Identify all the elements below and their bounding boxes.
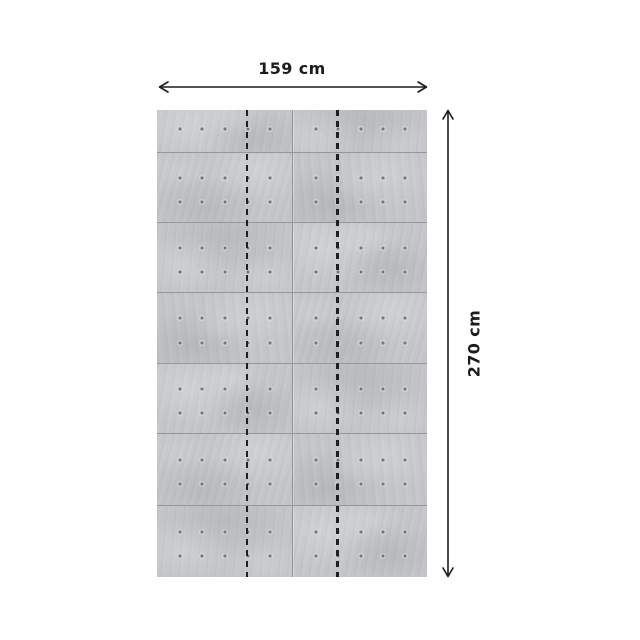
tie-hole-dot (382, 387, 385, 390)
height-dimension-label-wrap: 270 cm (456, 110, 492, 577)
tie-hole-dot (201, 555, 204, 558)
tie-hole-dot (179, 387, 182, 390)
height-dimension-label: 270 cm (465, 310, 484, 378)
tie-hole-dot (224, 246, 227, 249)
panel-row (157, 222, 427, 292)
concrete-block (292, 506, 427, 577)
tie-hole-dot (315, 176, 318, 179)
tie-hole-dot (359, 176, 362, 179)
concrete-block (292, 153, 427, 222)
tie-hole-dot (359, 387, 362, 390)
tie-hole-dot (359, 128, 362, 131)
strip-divider-line-2 (336, 110, 339, 577)
tie-hole-dot (179, 458, 182, 461)
tie-hole-dot (382, 200, 385, 203)
tie-hole-dot (179, 555, 182, 558)
tie-hole-dot (268, 483, 271, 486)
mural-panel (157, 110, 427, 577)
tie-hole-dot (268, 246, 271, 249)
tie-hole-dot (201, 530, 204, 533)
panel-row (157, 433, 427, 505)
tie-hole-dot (201, 246, 204, 249)
tie-hole-dot (201, 176, 204, 179)
tie-hole-dot (359, 200, 362, 203)
concrete-block (157, 153, 292, 222)
tie-hole-dot (224, 176, 227, 179)
tie-hole-dot (382, 317, 385, 320)
tie-hole-dot (268, 387, 271, 390)
width-dimension-label: 159 cm (157, 59, 427, 78)
tie-hole-dot (224, 341, 227, 344)
tie-hole-dot (224, 317, 227, 320)
tie-hole-dot (315, 128, 318, 131)
tie-hole-dot (404, 317, 407, 320)
panel-row (157, 505, 427, 577)
tie-hole-dot (224, 458, 227, 461)
tie-hole-dot (268, 458, 271, 461)
dimension-diagram: 159 cm 270 cm (0, 0, 640, 640)
concrete-block (292, 434, 427, 505)
tie-hole-dot (224, 483, 227, 486)
concrete-block (157, 110, 292, 152)
tie-hole-dot (179, 530, 182, 533)
panel-rows (157, 110, 427, 577)
panel-row (157, 292, 427, 363)
tie-hole-dot (224, 387, 227, 390)
tie-hole-dot (404, 270, 407, 273)
tie-hole-dot (201, 270, 204, 273)
tie-hole-dot (404, 555, 407, 558)
tie-hole-dot (359, 530, 362, 533)
tie-hole-dot (179, 411, 182, 414)
tie-hole-dot (359, 317, 362, 320)
tie-hole-dot (315, 270, 318, 273)
tie-hole-dot (359, 341, 362, 344)
tie-hole-dot (404, 176, 407, 179)
tie-hole-dot (315, 530, 318, 533)
tie-hole-dot (404, 483, 407, 486)
tie-hole-dot (359, 483, 362, 486)
concrete-block (157, 223, 292, 292)
concrete-block (157, 506, 292, 577)
tie-hole-dot (268, 317, 271, 320)
tie-hole-dot (315, 341, 318, 344)
tie-hole-dot (268, 411, 271, 414)
panel-row (157, 152, 427, 222)
tie-hole-dot (382, 246, 385, 249)
tie-hole-dot (404, 458, 407, 461)
concrete-block (292, 293, 427, 363)
tie-hole-dot (404, 341, 407, 344)
tie-hole-dot (201, 387, 204, 390)
tie-hole-dot (404, 128, 407, 131)
tie-hole-dot (382, 555, 385, 558)
tie-hole-dot (224, 200, 227, 203)
panel-row (157, 363, 427, 433)
tie-hole-dot (382, 128, 385, 131)
tie-hole-dot (382, 483, 385, 486)
tie-hole-dot (201, 483, 204, 486)
tie-hole-dot (179, 246, 182, 249)
height-arrow (443, 111, 453, 577)
tie-hole-dot (179, 270, 182, 273)
tie-hole-dot (315, 555, 318, 558)
tie-hole-dot (359, 458, 362, 461)
width-arrow (160, 82, 427, 92)
tie-hole-dot (224, 530, 227, 533)
tie-hole-dot (315, 411, 318, 414)
tie-hole-dot (179, 176, 182, 179)
tie-hole-dot (224, 555, 227, 558)
tie-hole-dot (201, 458, 204, 461)
tie-hole-dot (268, 128, 271, 131)
tie-hole-dot (315, 317, 318, 320)
tie-hole-dot (224, 270, 227, 273)
tie-hole-dot (315, 200, 318, 203)
tie-hole-dot (268, 530, 271, 533)
tie-hole-dot (315, 483, 318, 486)
tie-hole-dot (382, 458, 385, 461)
tie-hole-dot (268, 555, 271, 558)
tie-hole-dot (179, 483, 182, 486)
tie-hole-dot (201, 200, 204, 203)
tie-hole-dot (201, 317, 204, 320)
concrete-block (157, 434, 292, 505)
panel-row (157, 110, 427, 152)
tie-hole-dot (359, 246, 362, 249)
tie-hole-dot (359, 411, 362, 414)
tie-hole-dot (201, 411, 204, 414)
tie-hole-dot (201, 341, 204, 344)
tie-hole-dot (404, 200, 407, 203)
tie-hole-dot (404, 387, 407, 390)
tie-hole-dot (201, 128, 204, 131)
tie-hole-dot (224, 128, 227, 131)
tie-hole-dot (179, 341, 182, 344)
concrete-block (157, 364, 292, 433)
tie-hole-dot (315, 458, 318, 461)
tie-hole-dot (382, 270, 385, 273)
concrete-block (292, 364, 427, 433)
tie-hole-dot (224, 411, 227, 414)
tie-hole-dot (382, 176, 385, 179)
tie-hole-dot (382, 530, 385, 533)
tie-hole-dot (315, 246, 318, 249)
strip-divider-line-1 (246, 110, 249, 577)
tie-hole-dot (382, 341, 385, 344)
tie-hole-dot (404, 530, 407, 533)
tie-hole-dot (268, 341, 271, 344)
tie-hole-dot (404, 411, 407, 414)
concrete-block (157, 293, 292, 363)
tie-hole-dot (359, 555, 362, 558)
tie-hole-dot (268, 200, 271, 203)
tie-hole-dot (315, 387, 318, 390)
tie-hole-dot (382, 411, 385, 414)
tie-hole-dot (179, 317, 182, 320)
concrete-block (292, 110, 427, 152)
tie-hole-dot (179, 128, 182, 131)
tie-hole-dot (179, 200, 182, 203)
tie-hole-dot (268, 270, 271, 273)
tie-hole-dot (404, 246, 407, 249)
concrete-block (292, 223, 427, 292)
tie-hole-dot (359, 270, 362, 273)
tie-hole-dot (268, 176, 271, 179)
